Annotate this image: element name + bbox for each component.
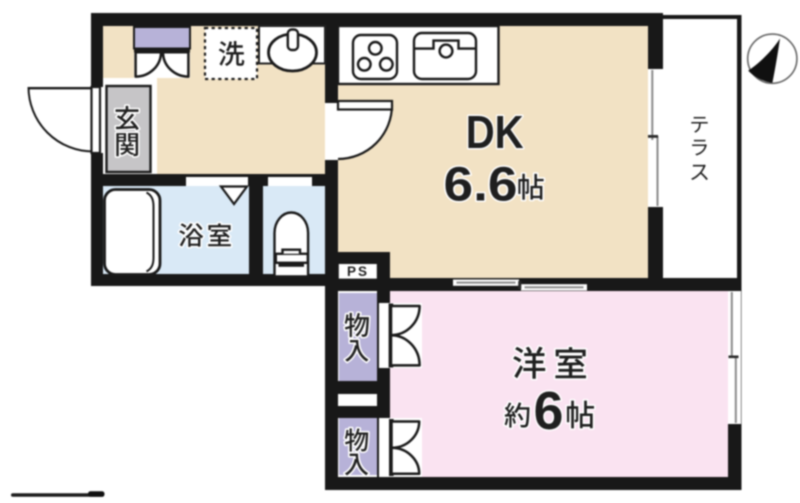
svg-text:6: 6 [534,381,564,441]
svg-text:PS: PS [347,264,369,279]
svg-text:6.6: 6.6 [444,159,518,212]
svg-text:DK: DK [466,106,524,158]
